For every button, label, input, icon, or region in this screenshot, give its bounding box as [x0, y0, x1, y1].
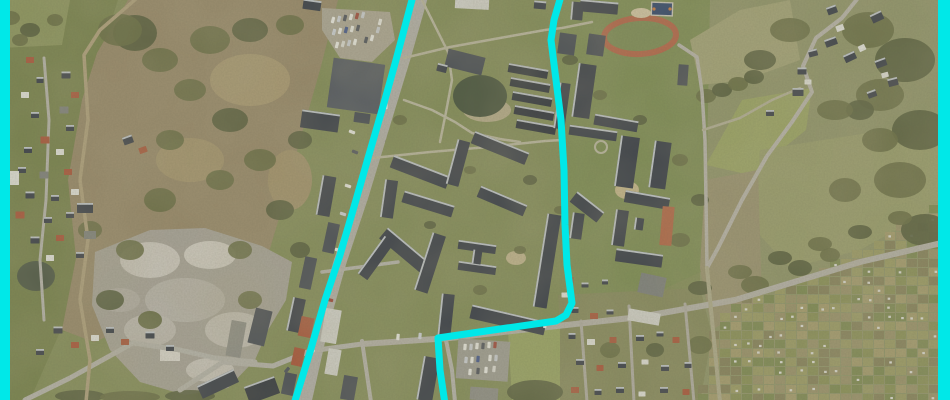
- aerial-map-viewport[interactable]: [0, 0, 950, 400]
- aerial-map: [0, 0, 950, 400]
- photo-grain-texture: [0, 0, 950, 400]
- boundary-stripe-right: [938, 0, 950, 400]
- boundary-stripe-left: [0, 0, 10, 400]
